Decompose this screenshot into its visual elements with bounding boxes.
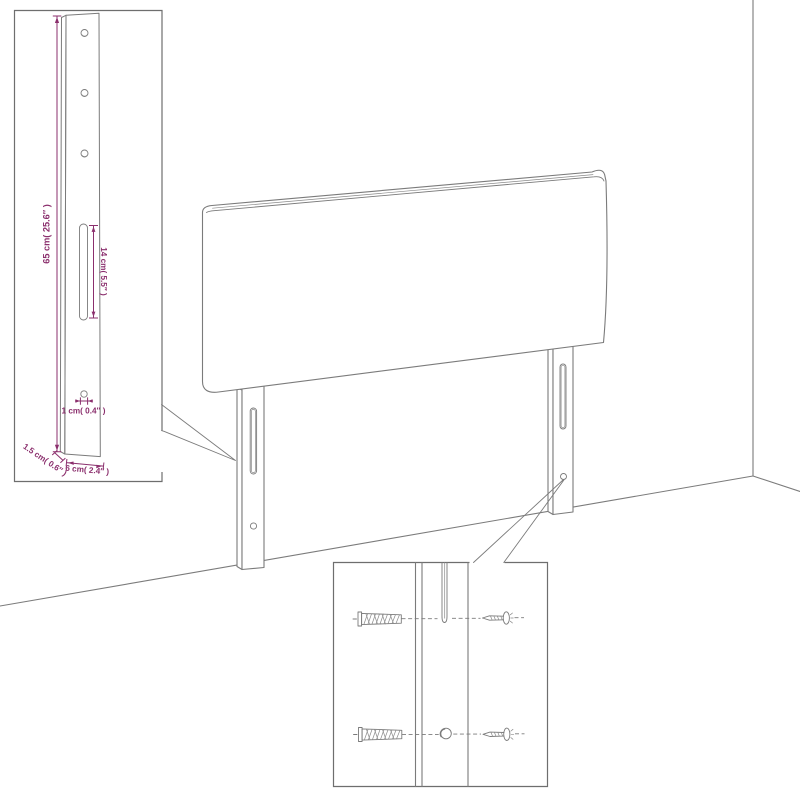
assembly-diagram-page: 65 cm( 25.6″ ) 14 cm( 5.5″ ) 1 cm( 0.4″ … [0, 0, 800, 800]
inset-background [334, 563, 548, 787]
inset-callout-lines [162, 405, 236, 461]
headboard-leg-left [237, 383, 264, 570]
leg-side-face [548, 343, 553, 515]
headboard-panel [203, 170, 608, 392]
mounting-detail-inset [334, 480, 564, 787]
leg-height-label: 65 cm( 25.6″ ) [42, 204, 52, 264]
floor-edge-right [753, 476, 800, 492]
hole-diameter-label: 1 cm( 0.4″ ) [62, 407, 106, 416]
leg-front-face [242, 383, 264, 570]
slot-length-label: 14 cm( 5.5″ ) [99, 247, 108, 296]
leg-side-face [237, 388, 242, 570]
diagram-svg: 65 cm( 25.6″ ) 14 cm( 5.5″ ) 1 cm( 0.4″ … [0, 0, 800, 800]
headboard-leg-right [548, 340, 573, 515]
leg-front-face [553, 340, 573, 515]
